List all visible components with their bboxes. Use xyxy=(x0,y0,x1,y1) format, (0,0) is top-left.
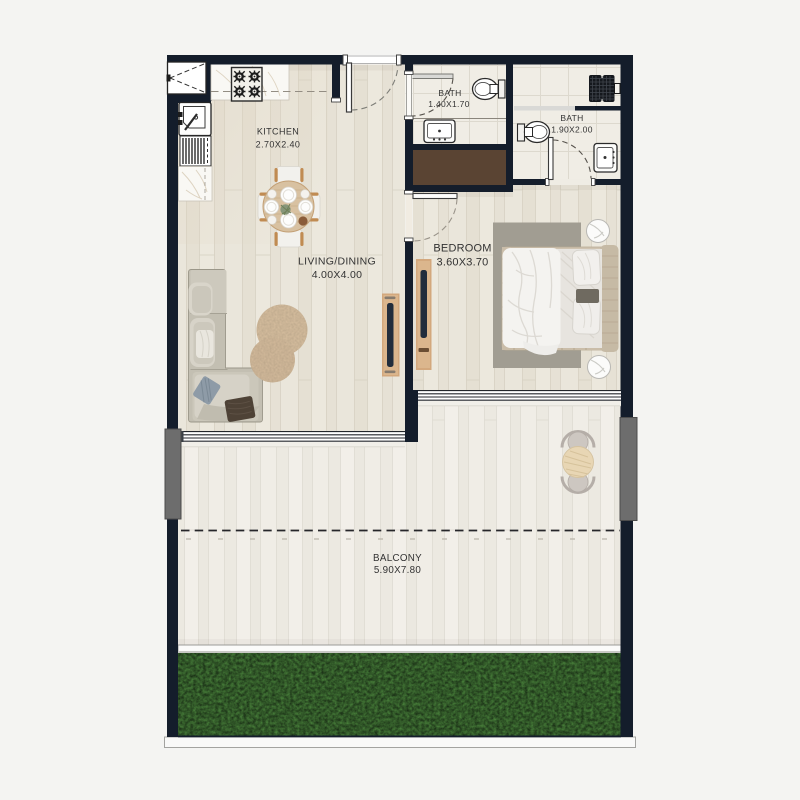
svg-text:BATH: BATH xyxy=(438,88,461,98)
svg-text:5.90X7.80: 5.90X7.80 xyxy=(374,565,422,576)
svg-text:2.70X2.40: 2.70X2.40 xyxy=(256,140,301,150)
svg-text:KITCHEN: KITCHEN xyxy=(257,127,299,137)
svg-text:BATH: BATH xyxy=(560,113,583,123)
svg-text:BEDROOM: BEDROOM xyxy=(433,243,491,255)
svg-text:1.90X2.00: 1.90X2.00 xyxy=(551,125,592,135)
svg-text:LIVING/DINING: LIVING/DINING xyxy=(298,256,376,268)
svg-text:BALCONY: BALCONY xyxy=(373,553,422,564)
svg-text:4.00X4.00: 4.00X4.00 xyxy=(312,269,363,281)
svg-text:3.60X3.70: 3.60X3.70 xyxy=(437,257,489,269)
svg-text:1.40X1.70: 1.40X1.70 xyxy=(428,99,469,109)
